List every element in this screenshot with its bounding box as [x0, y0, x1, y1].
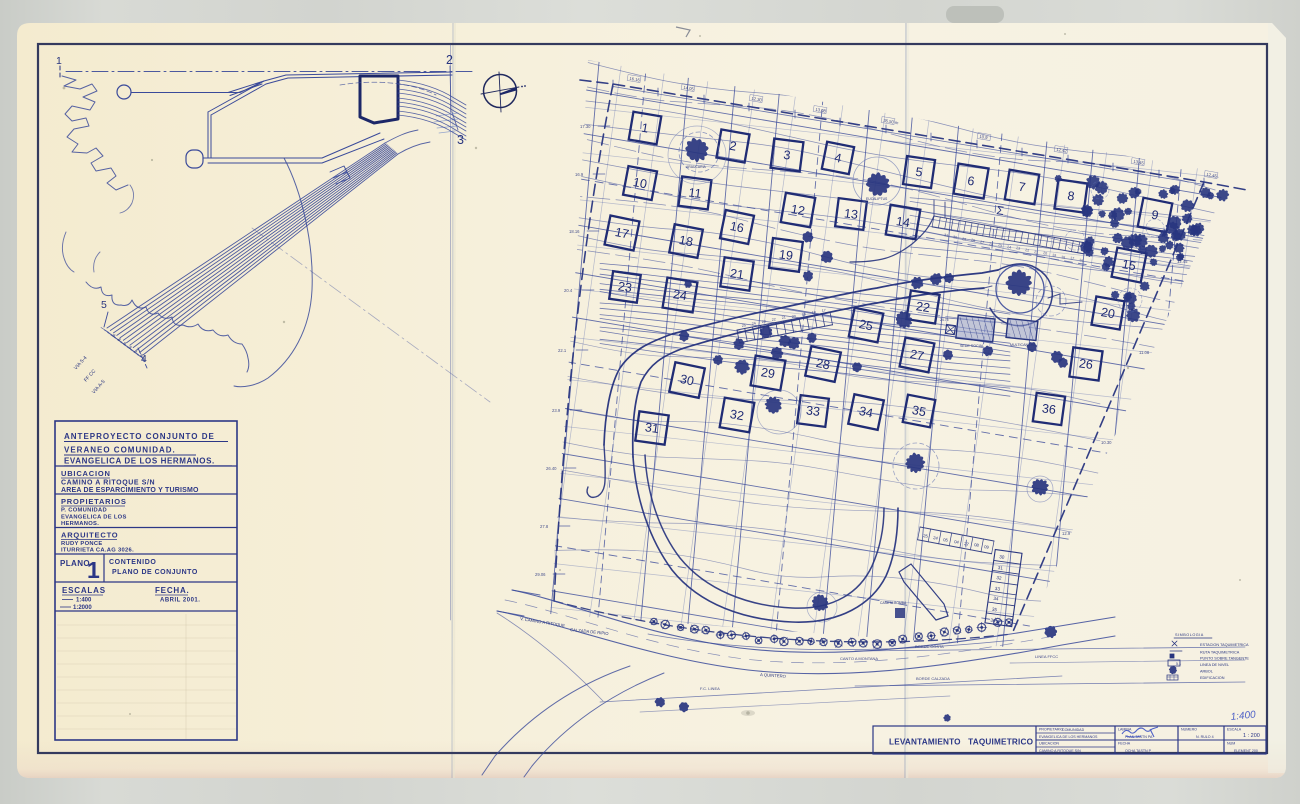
svg-text:EVANGELICA DE LOS HERMANOS.: EVANGELICA DE LOS HERMANOS. [64, 457, 215, 466]
svg-text:23: 23 [761, 319, 766, 324]
svg-text:20: 20 [1043, 251, 1048, 256]
svg-text:29: 29 [962, 237, 967, 242]
svg-text:21: 21 [781, 315, 786, 320]
svg-text:ESTACION TAQUIMETRICA: ESTACION TAQUIMETRICA [1200, 643, 1249, 647]
svg-text:25: 25 [858, 317, 874, 334]
svg-text:SEDE SOCIAL: SEDE SOCIAL [960, 344, 984, 348]
svg-text:VERANEO COMUNIDAD.: VERANEO COMUNIDAD. [64, 446, 176, 455]
svg-text:36: 36 [1041, 401, 1057, 417]
svg-text:30: 30 [679, 372, 696, 389]
svg-text:NUMERO: NUMERO [1181, 728, 1197, 732]
svg-text:25: 25 [998, 243, 1003, 248]
svg-text:RUTA TAQUIMETRICA: RUTA TAQUIMETRICA [1200, 651, 1240, 655]
svg-text:1:2000: 1:2000 [73, 605, 92, 611]
svg-text:LINEA FFCC: LINEA FFCC [1035, 654, 1058, 659]
svg-text:EVANGELICA DE LOS: EVANGELICA DE LOS [61, 515, 127, 521]
svg-text:30: 30 [953, 235, 958, 240]
svg-text:27: 27 [909, 347, 925, 364]
svg-text:ESCALAS: ESCALAS [62, 586, 106, 595]
svg-text:5.1: 5.1 [1176, 662, 1181, 666]
svg-text:26: 26 [989, 242, 994, 247]
svg-text:22.1: 22.1 [558, 348, 567, 353]
svg-text:12: 12 [790, 202, 806, 218]
svg-text:ARQUITECTO: ARQUITECTO [61, 531, 118, 540]
svg-text:UBICACION: UBICACION [61, 469, 111, 478]
svg-text:16: 16 [1079, 258, 1084, 263]
svg-text:23: 23 [1016, 246, 1021, 251]
svg-text:28: 28 [815, 356, 832, 373]
svg-text:1 : 200: 1 : 200 [1243, 733, 1260, 739]
svg-text:CASETA BOMBA: CASETA BOMBA [880, 601, 907, 605]
svg-text:19: 19 [1052, 253, 1057, 258]
svg-text:NUM: NUM [1227, 742, 1235, 746]
svg-text:31: 31 [644, 420, 660, 436]
svg-text:EUCALIPTUS: EUCALIPTUS [866, 197, 888, 201]
svg-text:22: 22 [1025, 248, 1030, 253]
svg-text:PLANO: PLANO [60, 559, 90, 568]
svg-text:21: 21 [729, 266, 745, 282]
svg-text:ANTEPROYECTO CONJUNTO DE: ANTEPROYECTO CONJUNTO DE [64, 432, 215, 441]
svg-text:BORDE CALZADA: BORDE CALZADA [916, 676, 950, 681]
svg-text:PROPIETARIOS: PROPIETARIOS [61, 497, 127, 506]
svg-text:EVANGELICA DE LOS HERMANOS: EVANGELICA DE LOS HERMANOS [1039, 735, 1098, 739]
svg-text:18: 18 [1061, 255, 1066, 260]
svg-text:EDIFICACION: EDIFICACION [1200, 676, 1225, 680]
svg-text:17: 17 [821, 308, 826, 313]
svg-text:CAMINO A RITOQUE S/N: CAMINO A RITOQUE S/N [61, 480, 155, 487]
svg-text:ARBOL: ARBOL [1200, 670, 1213, 674]
svg-text:24: 24 [672, 287, 688, 303]
svg-text:HERMANOS.: HERMANOS. [61, 521, 99, 527]
svg-text:ABRIL 2001.: ABRIL 2001. [160, 598, 200, 604]
svg-text:BORDE COSTA: BORDE COSTA [915, 644, 944, 649]
svg-text:1: 1 [87, 557, 100, 583]
svg-text:17.30: 17.30 [580, 124, 591, 129]
svg-text:PUNTO SOBRE TANGENTE: PUNTO SOBRE TANGENTE [1200, 657, 1249, 661]
svg-text:OCHA TASTN P: OCHA TASTN P [1125, 749, 1152, 753]
svg-text:P. COMUNIDAD: P. COMUNIDAD [61, 508, 107, 514]
svg-text:11: 11 [688, 185, 703, 201]
svg-text:16: 16 [729, 219, 746, 236]
svg-text:27: 27 [980, 240, 985, 245]
svg-text:ARAUCARIA: ARAUCARIA [686, 165, 707, 169]
svg-text:24: 24 [751, 321, 756, 326]
svg-text:23.9: 23.9 [552, 408, 561, 413]
svg-text:24.75: 24.75 [940, 318, 949, 322]
svg-text:COMUNIDAD: COMUNIDAD [1062, 728, 1085, 732]
svg-text:ESCALA: ESCALA [1227, 728, 1242, 732]
svg-text:LINEA DE NIVEL: LINEA DE NIVEL [1200, 663, 1229, 667]
svg-text:18.16: 18.16 [569, 229, 580, 234]
svg-text:20.4: 20.4 [564, 288, 573, 293]
svg-text:18: 18 [678, 233, 694, 249]
svg-text:FECHA.: FECHA. [155, 586, 190, 595]
svg-text:28: 28 [971, 238, 976, 243]
svg-text:1: 1 [56, 55, 62, 67]
svg-text:32: 32 [729, 407, 745, 423]
svg-text:PLANO DE CONJUNTO: PLANO DE CONJUNTO [112, 569, 198, 576]
svg-text:22: 22 [771, 317, 776, 322]
svg-text:31: 31 [944, 233, 949, 238]
svg-text:20: 20 [791, 314, 796, 319]
svg-text:SIMBOLOGIA: SIMBOLOGIA [1175, 633, 1204, 637]
svg-text:35: 35 [911, 403, 927, 419]
svg-text:LEVANTAMIENTO TAQUIMETRICO: LEVANTAMIENTO TAQUIMETRICO [889, 738, 1034, 747]
svg-text:UBICACION: UBICACION [1039, 742, 1059, 746]
svg-text:FECHA: FECHA [1118, 742, 1131, 746]
svg-text:ELEMENT 200: ELEMENT 200 [1234, 749, 1258, 753]
svg-text:5: 5 [101, 299, 107, 311]
svg-text:18: 18 [811, 310, 816, 315]
svg-text:25: 25 [741, 323, 746, 328]
svg-text:14: 14 [895, 214, 911, 230]
svg-text:20: 20 [1100, 305, 1116, 321]
svg-text:27.8: 27.8 [540, 524, 549, 529]
svg-text:23: 23 [617, 279, 633, 295]
svg-text:13: 13 [843, 206, 859, 222]
svg-text:11.08: 11.08 [1139, 350, 1150, 355]
svg-text:16.9: 16.9 [575, 172, 584, 177]
svg-text:PROPIETARIO: PROPIETARIO [1039, 728, 1063, 732]
svg-text:34: 34 [858, 404, 875, 421]
svg-text:2: 2 [446, 53, 453, 67]
svg-text:F.C. LINEA: F.C. LINEA [700, 686, 720, 691]
svg-text:CANTO A MONTANA: CANTO A MONTANA [840, 656, 878, 661]
svg-text:26: 26 [1078, 356, 1094, 372]
svg-text:N. RULO 4: N. RULO 4 [1196, 735, 1214, 739]
svg-text:22: 22 [915, 299, 931, 315]
svg-text:26.40: 26.40 [546, 466, 557, 471]
svg-text:RUDY PONCE: RUDY PONCE [61, 541, 103, 547]
svg-text:10: 10 [632, 175, 648, 191]
svg-text:29: 29 [760, 365, 776, 381]
svg-text:33: 33 [805, 403, 821, 419]
svg-text:10.30: 10.30 [1101, 440, 1112, 445]
svg-text:4: 4 [141, 353, 147, 365]
svg-text:29.06: 29.06 [535, 572, 546, 577]
svg-text:AREA DE ESPARCIMIENTO Y TUR: AREA DE ESPARCIMIENTO Y TURISMO [61, 487, 199, 494]
svg-text:19: 19 [801, 312, 806, 317]
svg-text:ITURRIETA CA.AG 3026.: ITURRIETA CA.AG 3026. [61, 548, 134, 554]
svg-text:24: 24 [1007, 245, 1012, 250]
svg-text:17: 17 [614, 225, 630, 242]
svg-text:17: 17 [1070, 256, 1075, 261]
svg-text:19: 19 [778, 247, 794, 263]
svg-text:CONTENIDO: CONTENIDO [109, 559, 156, 566]
svg-text:CAMINO A RITOQUE S/N: CAMINO A RITOQUE S/N [1039, 749, 1081, 753]
svg-text:21: 21 [1034, 250, 1039, 255]
svg-text:1:400: 1:400 [76, 598, 92, 604]
svg-text:12.9: 12.9 [1062, 531, 1071, 536]
svg-text:15: 15 [1121, 257, 1137, 273]
